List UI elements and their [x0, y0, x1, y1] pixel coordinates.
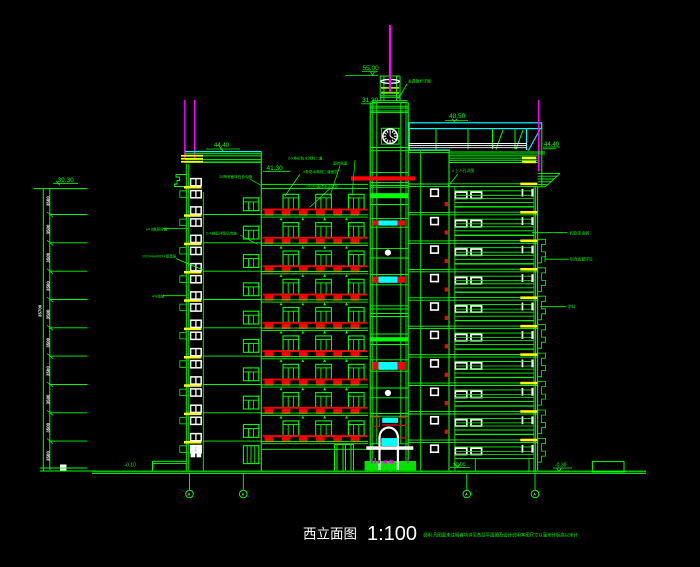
svg-text:乳胶漆 面砖: 乳胶漆 面砖 [570, 230, 590, 235]
svg-text:3500: 3500 [45, 394, 50, 404]
svg-text:铝合金窗详见: 铝合金窗详见 [570, 257, 593, 262]
svg-text:4%找坡: 4%找坡 [152, 294, 165, 299]
svg-text:1X0X4a4X0X4保温层: 1X0X4a4X0X4保温层 [142, 254, 177, 259]
svg-text:3500: 3500 [45, 366, 50, 376]
svg-text:3500: 3500 [45, 309, 50, 319]
svg-text:3X陶瓷面砖白色勾缝: 3X陶瓷面砖白色勾缝 [219, 174, 253, 179]
svg-text:4 上人孔详图: 4 上人孔详图 [452, 168, 474, 173]
svg-text:说明:凡图面未注明者均详见各层平面图及设计说明本图尺寸以毫米: 说明:凡图面未注明者均详见各层平面图及设计说明本图尺寸以毫米计标高以米计 [423, 532, 579, 539]
svg-text:金属旗杆详图: 金属旗杆详图 [408, 79, 431, 84]
svg-text:3500: 3500 [45, 422, 50, 432]
svg-text:面砖贴面: 面砖贴面 [333, 160, 348, 165]
svg-text:3500: 3500 [45, 196, 50, 206]
svg-text:X条防水卷材二道面层: X条防水卷材二道面层 [303, 169, 338, 174]
svg-text:3500: 3500 [45, 337, 50, 347]
svg-text:1:100: 1:100 [367, 523, 417, 545]
svg-text:涂料: 涂料 [568, 304, 576, 309]
svg-text:35700: 35700 [38, 304, 43, 317]
svg-text:44.40: 44.40 [214, 143, 230, 149]
svg-text:3500: 3500 [45, 451, 50, 461]
svg-text:3500: 3500 [45, 281, 50, 291]
svg-text:2-X条形防水涂料二道: 2-X条形防水涂料二道 [288, 155, 323, 160]
svg-text:西立面图: 西立面图 [303, 527, 357, 542]
svg-text:3500: 3500 [45, 252, 50, 262]
svg-text:-0.10: -0.10 [125, 463, 137, 469]
svg-text:2-X剖面详图见结施: 2-X剖面详图见结施 [206, 230, 237, 235]
svg-text:48.50: 48.50 [449, 113, 466, 120]
svg-text:3500: 3500 [45, 224, 50, 234]
svg-text:41.30: 41.30 [267, 165, 284, 172]
